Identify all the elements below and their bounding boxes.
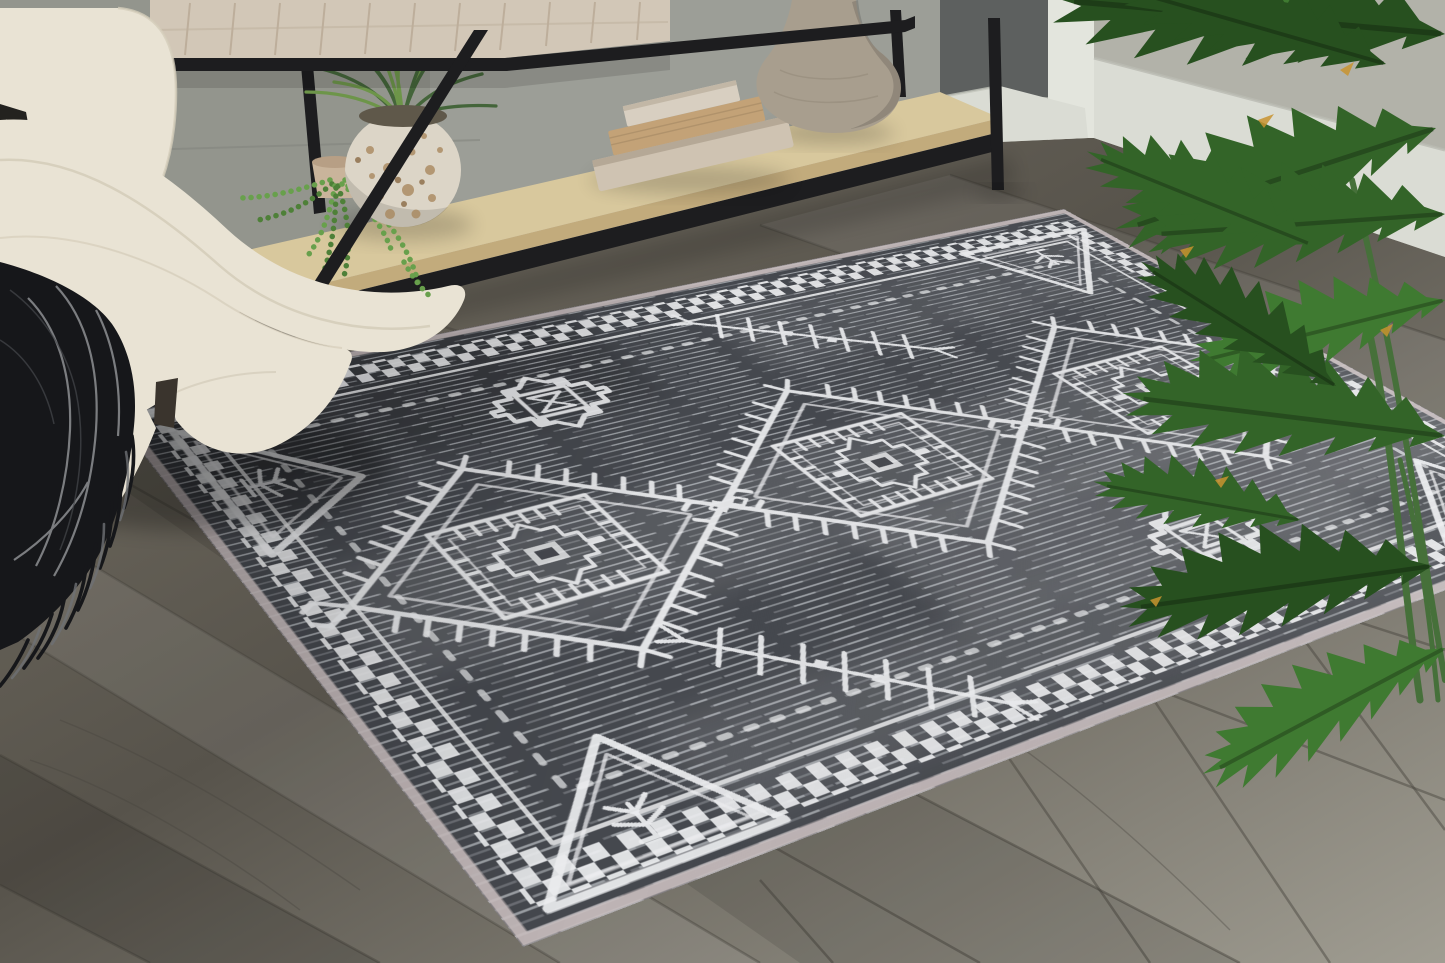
sofa-foot	[154, 378, 178, 428]
living-room-photo	[0, 0, 1445, 963]
philodendron-plant	[1023, 0, 1445, 808]
plant-leaves	[1023, 0, 1445, 808]
foreground	[0, 0, 1445, 963]
